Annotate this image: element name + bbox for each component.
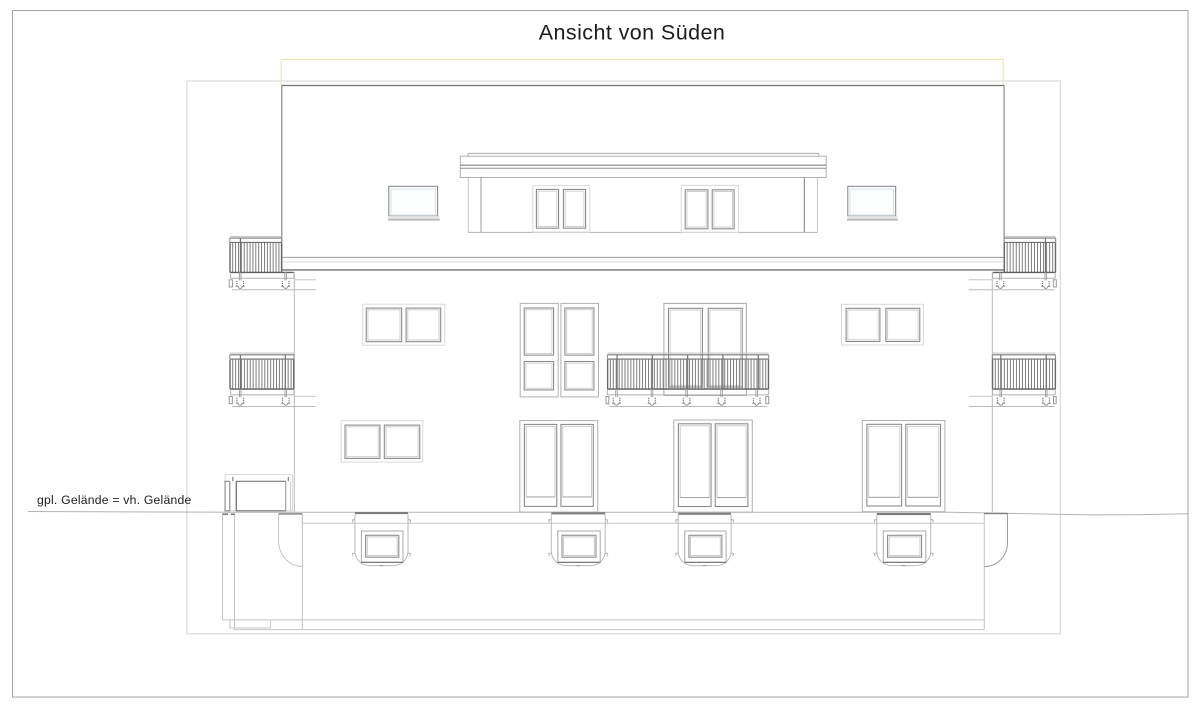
svg-text:gpl. Gelände = vh. Gelände: gpl. Gelände = vh. Gelände bbox=[37, 493, 191, 507]
svg-text:Ansicht von Süden: Ansicht von Süden bbox=[539, 21, 725, 45]
